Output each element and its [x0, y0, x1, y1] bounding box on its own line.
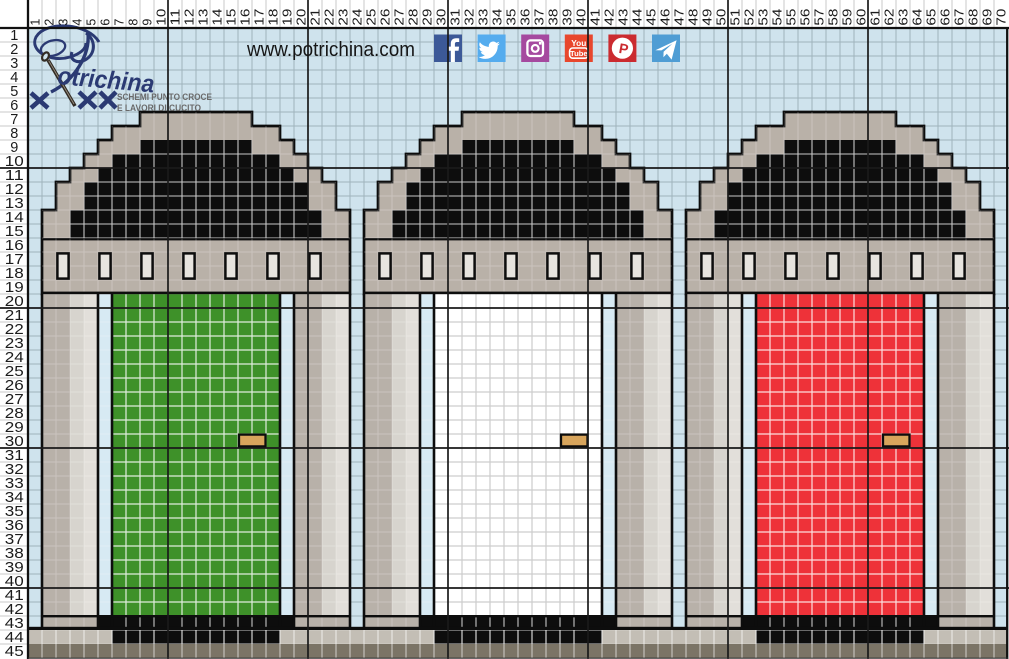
svg-text:26: 26 — [378, 9, 392, 26]
svg-text:27: 27 — [392, 9, 406, 26]
svg-text:60: 60 — [854, 9, 868, 26]
svg-text:9: 9 — [140, 19, 154, 26]
svg-text:45: 45 — [644, 9, 658, 26]
svg-text:37: 37 — [532, 9, 546, 26]
svg-text:12: 12 — [182, 9, 196, 26]
svg-text:17: 17 — [252, 9, 266, 26]
svg-text:36: 36 — [518, 9, 532, 26]
svg-text:43: 43 — [616, 9, 630, 26]
svg-text:70: 70 — [994, 9, 1008, 26]
svg-text:63: 63 — [896, 9, 910, 26]
svg-text:13: 13 — [196, 9, 210, 26]
svg-text:20: 20 — [294, 9, 308, 26]
svg-text:33: 33 — [476, 9, 490, 26]
svg-text:66: 66 — [938, 9, 952, 26]
svg-text:47: 47 — [672, 9, 686, 26]
svg-text:2: 2 — [42, 19, 56, 26]
svg-text:5: 5 — [84, 19, 98, 26]
svg-text:64: 64 — [910, 9, 924, 26]
svg-text:4: 4 — [70, 19, 84, 26]
svg-text:24: 24 — [350, 9, 364, 26]
svg-text:45: 45 — [5, 644, 24, 659]
svg-text:Tube: Tube — [570, 49, 588, 58]
svg-text:11: 11 — [168, 9, 182, 26]
svg-text:3: 3 — [56, 19, 70, 26]
svg-text:57: 57 — [812, 9, 826, 26]
svg-text:15: 15 — [224, 9, 238, 26]
svg-text:19: 19 — [280, 9, 294, 26]
svg-text:1: 1 — [28, 19, 42, 26]
svg-text:32: 32 — [462, 9, 476, 26]
svg-text:65: 65 — [924, 9, 938, 26]
svg-text:56: 56 — [798, 9, 812, 26]
svg-text:7: 7 — [112, 19, 126, 26]
svg-text:46: 46 — [658, 9, 672, 26]
svg-text:E LAVORI DI CUCITO: E LAVORI DI CUCITO — [117, 103, 201, 114]
svg-text:68: 68 — [966, 9, 980, 26]
svg-text:14: 14 — [210, 9, 224, 26]
svg-text:8: 8 — [126, 19, 140, 26]
svg-text:38: 38 — [546, 9, 560, 26]
svg-text:16: 16 — [238, 9, 252, 26]
svg-text:29: 29 — [420, 9, 434, 26]
svg-text:49: 49 — [700, 9, 714, 26]
svg-text:30: 30 — [434, 9, 448, 26]
svg-text:59: 59 — [840, 9, 854, 26]
svg-text:41: 41 — [588, 9, 602, 26]
svg-text:69: 69 — [980, 9, 994, 26]
svg-text:25: 25 — [364, 9, 378, 26]
svg-text:67: 67 — [952, 9, 966, 26]
svg-text:28: 28 — [406, 9, 420, 26]
svg-text:52: 52 — [742, 9, 756, 26]
svg-text:51: 51 — [728, 9, 742, 26]
svg-text:18: 18 — [266, 9, 280, 26]
svg-text:23: 23 — [336, 9, 350, 26]
svg-text:22: 22 — [322, 9, 336, 26]
svg-text:40: 40 — [574, 9, 588, 26]
svg-text:42: 42 — [602, 9, 616, 26]
svg-text:39: 39 — [560, 9, 574, 26]
svg-text:21: 21 — [308, 9, 322, 26]
svg-text:10: 10 — [154, 9, 168, 26]
svg-text:44: 44 — [630, 9, 644, 26]
svg-text:53: 53 — [756, 9, 770, 26]
svg-text:58: 58 — [826, 9, 840, 26]
svg-text:31: 31 — [448, 9, 462, 26]
svg-text:55: 55 — [784, 9, 798, 26]
svg-text:50: 50 — [714, 9, 728, 26]
svg-text:6: 6 — [98, 19, 112, 26]
svg-text:48: 48 — [686, 9, 700, 26]
svg-text:61: 61 — [868, 9, 882, 26]
svg-text:SCHEMI PUNTO CROCE: SCHEMI PUNTO CROCE — [117, 92, 212, 103]
svg-text:35: 35 — [504, 9, 518, 26]
svg-text:34: 34 — [490, 9, 504, 26]
svg-text:54: 54 — [770, 9, 784, 26]
svg-text:You: You — [571, 38, 586, 48]
svg-text:62: 62 — [882, 9, 896, 26]
svg-text:www.potrichina.com: www.potrichina.com — [246, 39, 415, 61]
